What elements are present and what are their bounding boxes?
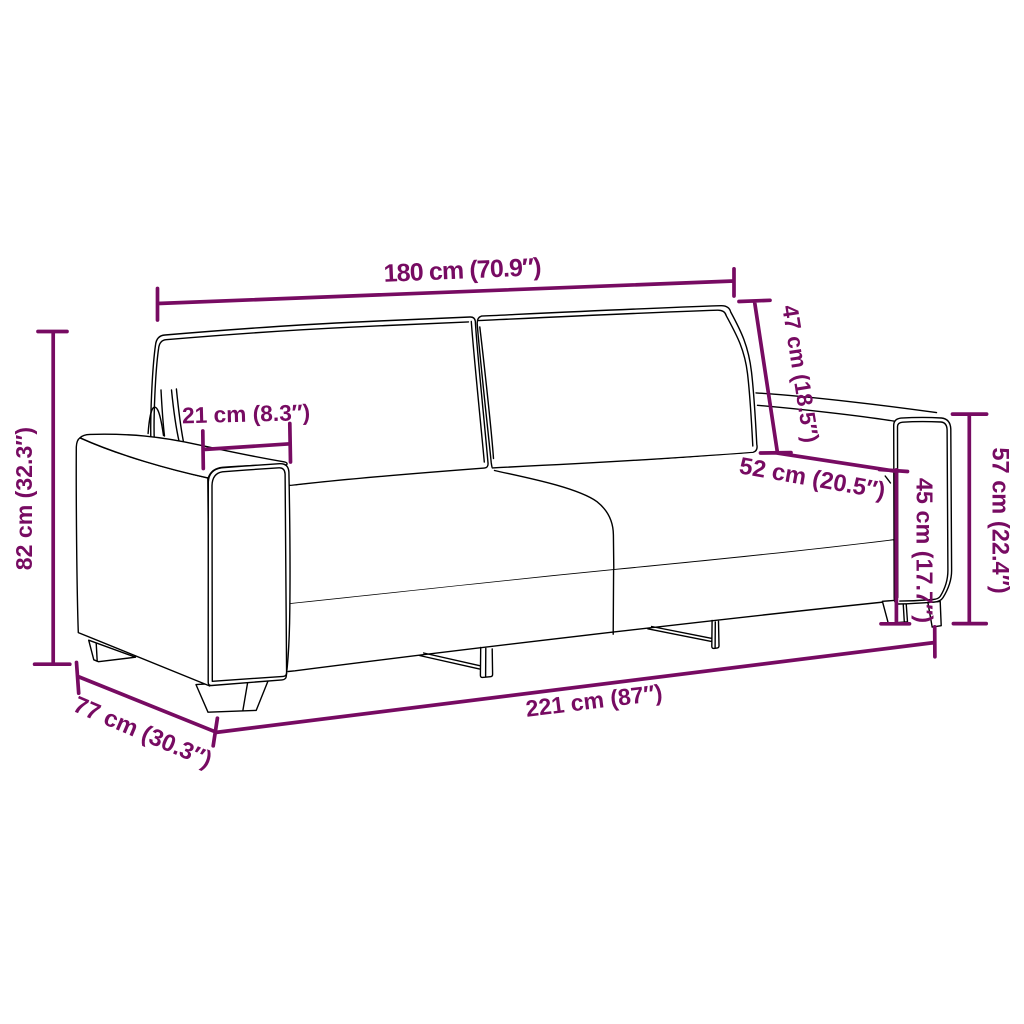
svg-text:21 cm (8.3″): 21 cm (8.3″): [182, 399, 311, 428]
svg-text:45 cm (17.7″): 45 cm (17.7″): [912, 478, 938, 623]
svg-text:82 cm (32.3″): 82 cm (32.3″): [11, 427, 37, 570]
svg-text:57 cm (22.4″): 57 cm (22.4″): [987, 447, 1013, 593]
